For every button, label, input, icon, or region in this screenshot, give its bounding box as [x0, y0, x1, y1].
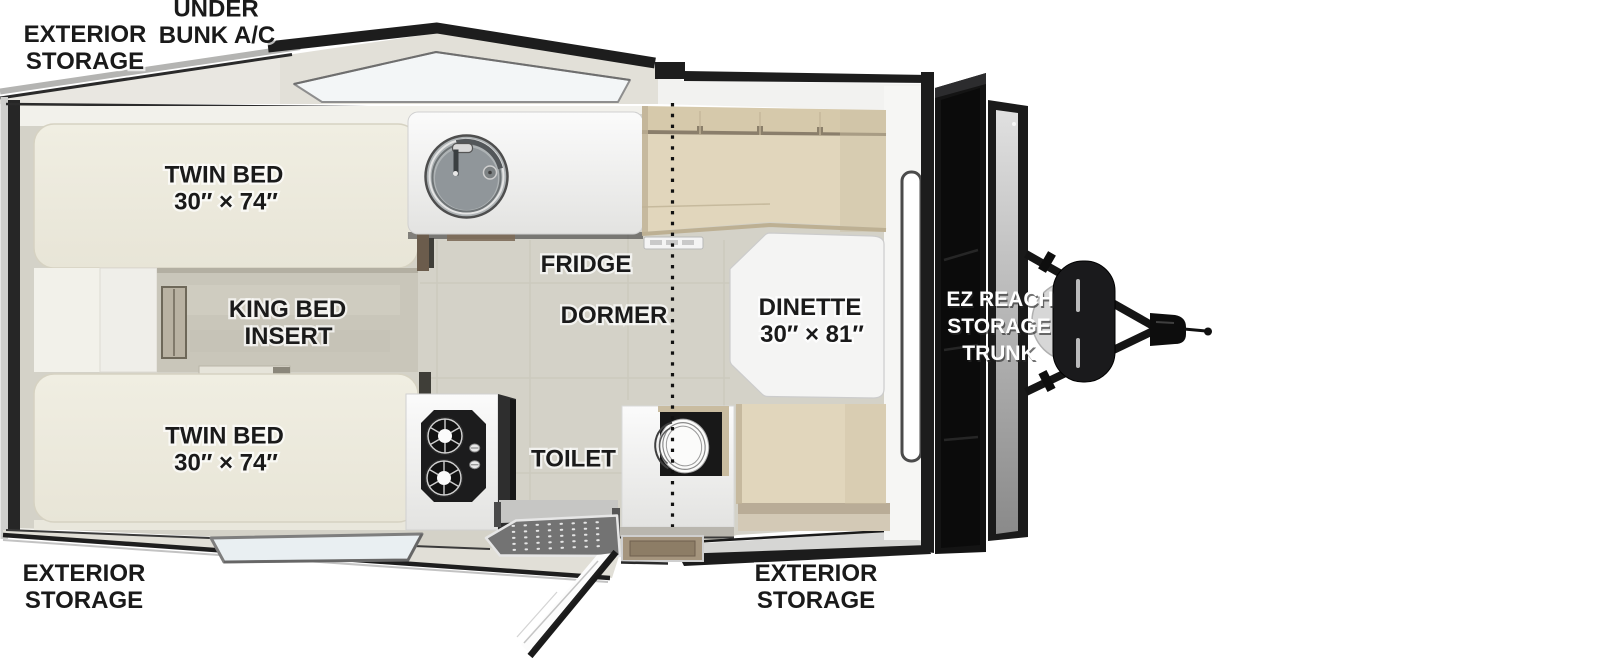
svg-text:30″ × 74″: 30″ × 74″: [174, 189, 278, 216]
svg-text:30″ × 81″: 30″ × 81″: [760, 321, 864, 348]
svg-text:TOILET: TOILET: [531, 446, 616, 473]
svg-text:EZ REACH: EZ REACH: [946, 288, 1053, 311]
svg-text:STORAGE: STORAGE: [25, 587, 143, 614]
svg-text:EXTERIOR: EXTERIOR: [755, 560, 878, 587]
svg-text:EXTERIOR: EXTERIOR: [24, 21, 147, 48]
svg-text:INSERT: INSERT: [244, 323, 332, 350]
svg-text:DINETTE: DINETTE: [759, 294, 862, 321]
svg-text:TWIN BED: TWIN BED: [165, 423, 284, 450]
svg-text:TWIN BED: TWIN BED: [165, 162, 284, 189]
svg-text:STORAGE: STORAGE: [947, 315, 1050, 338]
svg-text:STORAGE: STORAGE: [26, 48, 144, 75]
svg-text:STORAGE: STORAGE: [757, 587, 875, 614]
svg-text:TRUNK: TRUNK: [962, 342, 1036, 365]
svg-text:DORMER: DORMER: [561, 302, 668, 329]
svg-text:EXTERIOR: EXTERIOR: [23, 560, 146, 587]
svg-text:FRIDGE: FRIDGE: [541, 251, 632, 278]
svg-text:KING BED: KING BED: [229, 296, 346, 323]
svg-text:BUNK A/C: BUNK A/C: [159, 22, 275, 49]
svg-text:30″ × 74″: 30″ × 74″: [174, 450, 278, 477]
svg-text:UNDER: UNDER: [173, 0, 258, 23]
